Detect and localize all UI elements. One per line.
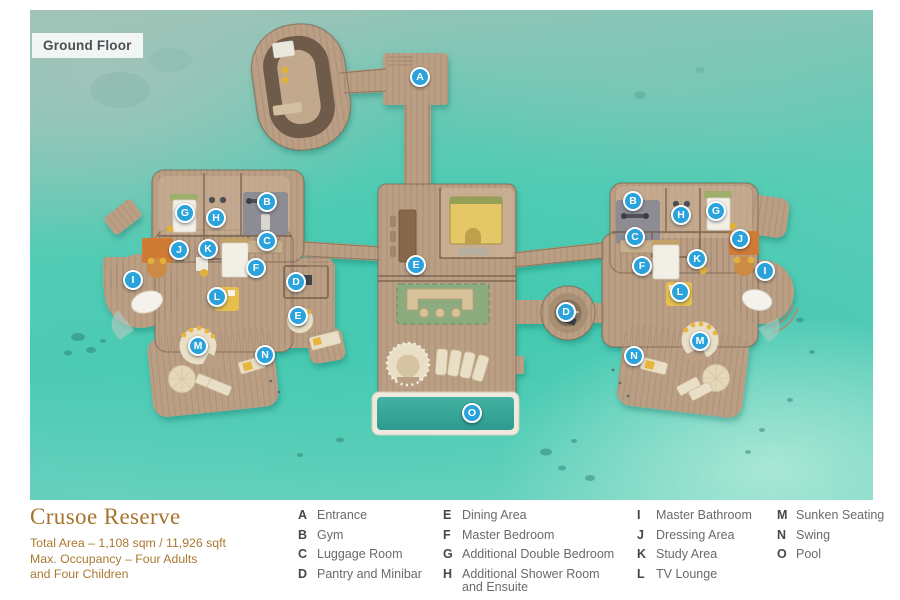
map-marker-o[interactable]: O (462, 403, 482, 423)
marker-letter: G (181, 208, 189, 219)
legend-letter: F (443, 529, 462, 543)
map-marker-f[interactable]: F (246, 258, 266, 278)
property-info: Total Area – 1,108 sqm / 11,926 sqftMax.… (30, 536, 226, 583)
map-marker-n[interactable]: N (624, 346, 644, 366)
marker-letter: F (253, 263, 259, 274)
legend-letter: H (443, 568, 462, 595)
legend-label: Pool (796, 548, 897, 562)
map-marker-m[interactable]: M (188, 336, 208, 356)
legend-column-4: M Sunken Seating N Swing O Pool (777, 509, 897, 568)
map-marker-k[interactable]: K (687, 249, 707, 269)
legend-label: Master Bedroom (462, 529, 623, 543)
map-marker-n[interactable]: N (255, 345, 275, 365)
legend-letter: N (777, 529, 796, 543)
legend-label: Additional Shower Room and Ensuite (462, 568, 623, 595)
map-marker-j[interactable]: J (169, 240, 189, 260)
legend-label: Dining Area (462, 509, 623, 523)
marker-letter: J (737, 234, 743, 245)
legend-label: Entrance (317, 509, 438, 523)
floorplan-page: Ground Floor A E D O B G H C J K F I D L (0, 0, 900, 600)
marker-letter: E (412, 260, 419, 271)
marker-letter: L (677, 287, 683, 298)
map-marker-l[interactable]: L (207, 287, 227, 307)
map-marker-h[interactable]: H (671, 205, 691, 225)
legend-letter: E (443, 509, 462, 523)
map-marker-g[interactable]: G (175, 203, 195, 223)
marker-letter: D (292, 277, 300, 288)
legend-column-2: E Dining Area F Master Bedroom G Additio… (443, 509, 623, 600)
legend-item: I Master Bathroom (637, 509, 772, 523)
legend-item: K Study Area (637, 548, 772, 562)
map-marker-l[interactable]: L (670, 282, 690, 302)
marker-letter: K (204, 244, 212, 255)
legend-label: Study Area (656, 548, 772, 562)
marker-letter: I (764, 266, 767, 277)
legend-letter: B (298, 529, 317, 543)
legend-item: F Master Bedroom (443, 529, 623, 543)
legend-label: Sunken Seating (796, 509, 897, 523)
legend-item: H Additional Shower Room and Ensuite (443, 568, 623, 595)
legend-item: M Sunken Seating (777, 509, 897, 523)
legend-label: TV Lounge (656, 568, 772, 582)
legend-letter: L (637, 568, 656, 582)
map-marker-j[interactable]: J (730, 229, 750, 249)
legend-item: C Luggage Room (298, 548, 438, 562)
marker-letter: H (677, 210, 685, 221)
marker-letter: G (712, 206, 720, 217)
marker-letter: K (693, 254, 701, 265)
legend-item: E Dining Area (443, 509, 623, 523)
map-marker-i[interactable]: I (123, 270, 143, 290)
legend-item: G Additional Double Bedroom (443, 548, 623, 562)
marker-letter: B (263, 197, 271, 208)
legend-letter: O (777, 548, 796, 562)
map-marker-g[interactable]: G (706, 201, 726, 221)
legend-item: D Pantry and Minibar (298, 568, 438, 582)
marker-letter: B (629, 196, 637, 207)
marker-letter: E (294, 311, 301, 322)
legend-letter: I (637, 509, 656, 523)
legend-letter: M (777, 509, 796, 523)
map-marker-c[interactable]: C (257, 231, 277, 251)
marker-letter: J (176, 245, 182, 256)
marker-letter: D (562, 307, 570, 318)
marker-letter: H (212, 213, 220, 224)
legend-letter: A (298, 509, 317, 523)
marker-letter: C (631, 232, 639, 243)
page-title: Crusoe Reserve (30, 504, 181, 530)
legend-column-3: I Master Bathroom J Dressing Area K Stud… (637, 509, 772, 587)
marker-letter: O (468, 408, 476, 419)
marker-letter: L (214, 292, 220, 303)
legend-label: Swing (796, 529, 897, 543)
legend-label: Additional Double Bedroom (462, 548, 623, 562)
legend-item: O Pool (777, 548, 897, 562)
property-info-line: Max. Occupancy – Four Adults (30, 552, 226, 568)
map-marker-k[interactable]: K (198, 239, 218, 259)
property-info-line: Total Area – 1,108 sqm / 11,926 sqft (30, 536, 226, 552)
map-marker-f[interactable]: F (632, 256, 652, 276)
marker-letter: A (416, 72, 424, 83)
legend-letter: D (298, 568, 317, 582)
legend-item: L TV Lounge (637, 568, 772, 582)
map-marker-b[interactable]: B (257, 192, 277, 212)
legend-item: J Dressing Area (637, 529, 772, 543)
marker-letter: I (132, 275, 135, 286)
marker-letter: C (263, 236, 271, 247)
marker-letter: N (261, 350, 269, 361)
legend-label: Pantry and Minibar (317, 568, 438, 582)
legend-letter: K (637, 548, 656, 562)
legend-letter: G (443, 548, 462, 562)
legend-letter: C (298, 548, 317, 562)
legend-item: A Entrance (298, 509, 438, 523)
map-marker-h[interactable]: H (206, 208, 226, 228)
map-marker-m[interactable]: M (690, 331, 710, 351)
marker-letter: M (194, 341, 203, 352)
legend-item: N Swing (777, 529, 897, 543)
map-marker-b[interactable]: B (623, 191, 643, 211)
legend-item: B Gym (298, 529, 438, 543)
marker-letter: N (630, 351, 638, 362)
map-marker-d[interactable]: D (286, 272, 306, 292)
map-markers-layer: A E D O B G H C J K F I D L E M (0, 0, 900, 500)
map-marker-c[interactable]: C (625, 227, 645, 247)
marker-letter: M (696, 336, 705, 347)
legend-label: Luggage Room (317, 548, 438, 562)
legend-label: Gym (317, 529, 438, 543)
legend-letter: J (637, 529, 656, 543)
legend-label: Dressing Area (656, 529, 772, 543)
map-marker-i[interactable]: I (755, 261, 775, 281)
map-marker-e[interactable]: E (406, 255, 426, 275)
marker-letter: F (639, 261, 645, 272)
legend-label: Master Bathroom (656, 509, 772, 523)
map-marker-a[interactable]: A (410, 67, 430, 87)
map-marker-d[interactable]: D (556, 302, 576, 322)
legend-column-1: A Entrance B Gym C Luggage Room D Pantry… (298, 509, 438, 587)
property-info-line: and Four Children (30, 567, 226, 583)
map-marker-e[interactable]: E (288, 306, 308, 326)
